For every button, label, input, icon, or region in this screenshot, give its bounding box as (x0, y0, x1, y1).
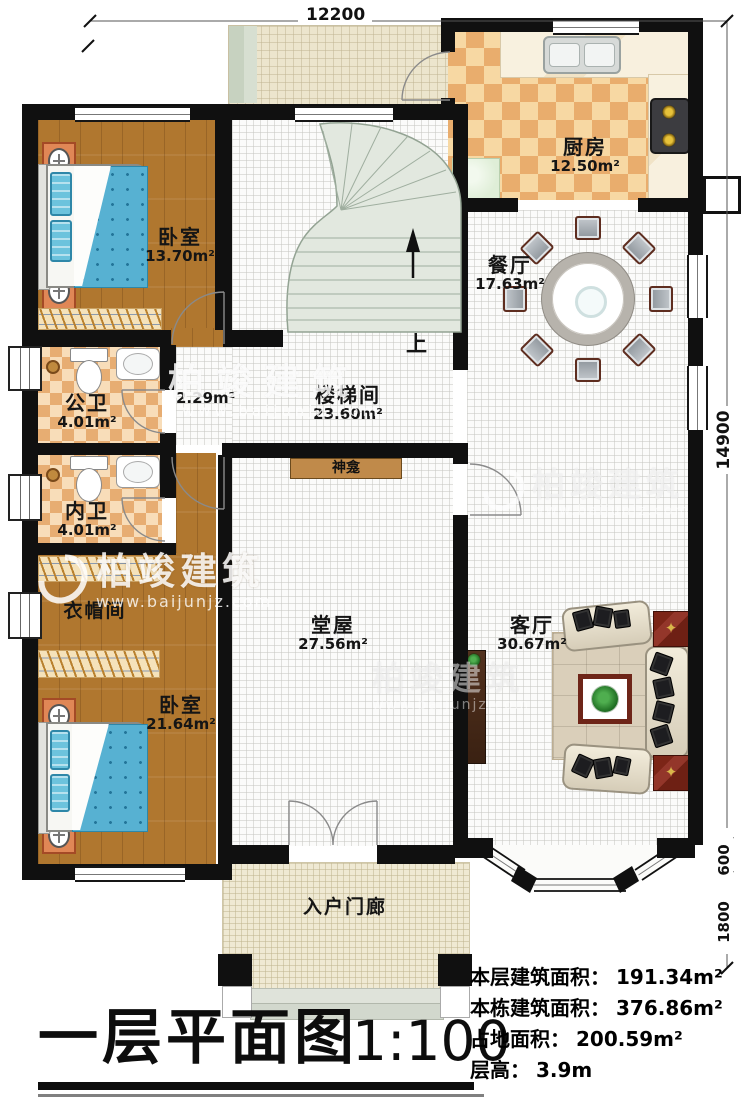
wall (453, 443, 468, 464)
room-label-dining: 餐厅 17.63m² (450, 254, 570, 293)
wall (441, 98, 455, 120)
room-name: 内卫 (47, 500, 127, 522)
wall (223, 330, 283, 347)
room-area: 17.63m² (450, 276, 570, 293)
stat-label: 本栋建筑面积： (470, 996, 610, 1020)
corridor-floor (176, 453, 216, 557)
window (295, 106, 393, 122)
window (687, 366, 708, 430)
wall (448, 198, 518, 212)
window (75, 106, 190, 122)
sofa-pillow (613, 609, 631, 629)
bed-pillow (50, 774, 70, 812)
stat-value: 376.86m² (616, 996, 723, 1020)
window (8, 592, 42, 639)
wall (222, 443, 232, 455)
room-name: 厨房 (525, 136, 645, 158)
room-label-kitchen: 厨房 12.50m² (525, 136, 645, 175)
dimension-top: 12200 (302, 5, 369, 25)
stat-value: 191.34m² (616, 965, 723, 989)
cloak-rack (38, 650, 160, 678)
dining-chair (649, 286, 673, 312)
room-name: 卧室 (130, 226, 230, 248)
side-table: ✦ (653, 611, 689, 647)
toilet-bowl (76, 468, 102, 502)
wall (377, 845, 455, 864)
room-label-porch: 入户门廊 (285, 896, 405, 918)
floor-drain (46, 360, 60, 374)
kitchen-stove (650, 98, 690, 154)
stat-value: 3.9m (536, 1058, 592, 1082)
floor-plan-page: ✦ ✦ (0, 0, 750, 1110)
stat-row: 占地面积：200.59m² (470, 1028, 723, 1050)
dimension-right-600: 600 (715, 828, 733, 892)
room-area: 12.50m² (525, 158, 645, 175)
porch-floor (222, 862, 470, 990)
room-label-living: 客厅 30.67m² (482, 614, 582, 653)
wall (22, 330, 171, 347)
wall (453, 515, 468, 845)
wardrobe-rack (38, 308, 162, 330)
wall (688, 18, 703, 200)
wall (215, 104, 232, 330)
bay-window (455, 838, 695, 893)
stat-label: 本层建筑面积： (470, 965, 610, 989)
vestibule-area-label: 2.29m² (176, 389, 235, 407)
room-name: 客厅 (482, 614, 582, 636)
room-label-stair-hall: 楼梯间 23.60m² (288, 384, 408, 423)
kitchen-sink (543, 36, 621, 74)
stove-burner (662, 105, 676, 119)
bed-pillow (50, 730, 70, 770)
terrace-green-strip-2 (244, 26, 257, 103)
bathroom-sink (116, 456, 160, 488)
bed-pillow (50, 172, 72, 216)
room-name: 入户门廊 (285, 896, 405, 918)
wall (22, 543, 176, 555)
cloak-rack (38, 556, 160, 582)
dimension-right-1800: 1800 (715, 890, 733, 954)
stat-row: 层高：3.9m (470, 1059, 723, 1081)
bed-pillow (50, 220, 72, 262)
wall (160, 345, 176, 390)
coffee-table-plant (592, 686, 618, 712)
room-label-cloakroom: 衣帽间 (45, 600, 145, 622)
drawing-title: 一层平面图 (38, 1008, 358, 1068)
room-label-main-hall: 堂屋 27.56m² (283, 614, 383, 653)
window (687, 255, 708, 318)
window (553, 19, 639, 35)
dining-chair (575, 216, 601, 240)
wall (160, 455, 176, 498)
room-area: 27.56m² (283, 636, 383, 653)
dining-table-center (575, 286, 607, 318)
room-label-bedroom2: 卧室 21.64m² (131, 694, 231, 733)
title-underline-2 (38, 1094, 484, 1097)
wall (232, 443, 455, 458)
tv-cabinet (466, 650, 486, 764)
shrine-label: 神龛 (332, 460, 360, 476)
window (75, 866, 185, 882)
stat-label: 占地面积： (470, 1027, 570, 1051)
room-label-public-bath: 公卫 4.01m² (47, 392, 127, 431)
room-area: 21.64m² (131, 716, 231, 733)
room-name: 卧室 (131, 694, 231, 716)
terrace-floor (228, 25, 457, 106)
wall (232, 845, 289, 864)
room-label-bedroom1: 卧室 13.70m² (130, 226, 230, 265)
flue-box (703, 176, 741, 214)
small-plant (468, 654, 480, 666)
room-area: 30.67m² (482, 636, 582, 653)
porch-column (438, 954, 472, 986)
stat-row: 本栋建筑面积：376.86m² (470, 997, 723, 1019)
sofa-pillow (592, 606, 613, 629)
room-label-private-bath: 内卫 4.01m² (47, 500, 127, 539)
wall (441, 18, 455, 52)
sofa-pillow (592, 757, 613, 780)
floor-drain (46, 468, 60, 482)
stat-row: 本层建筑面积：191.34m² (470, 966, 723, 988)
stat-label: 层高： (470, 1058, 530, 1082)
room-area: 4.01m² (47, 522, 127, 539)
bathroom-sink (116, 348, 160, 380)
terrace-green-strip (229, 26, 244, 103)
room-name: 公卫 (47, 392, 127, 414)
window (8, 346, 42, 391)
stove-burner (662, 133, 676, 147)
title-underline (38, 1082, 474, 1090)
room-area: 23.60m² (288, 406, 408, 423)
room-area: 4.01m² (47, 414, 127, 431)
wall (160, 433, 176, 455)
stat-value: 200.59m² (576, 1027, 683, 1051)
area-stats: 本层建筑面积：191.34m² 本栋建筑面积：376.86m² 占地面积：200… (470, 966, 723, 1081)
side-table: ✦ (653, 755, 689, 791)
room-name: 楼梯间 (288, 384, 408, 406)
wall (453, 104, 468, 370)
dining-chair (575, 358, 601, 382)
wall (218, 455, 232, 880)
room-area: 13.70m² (130, 248, 230, 265)
room-name: 餐厅 (450, 254, 570, 276)
porch-column (218, 954, 252, 986)
toilet-bowl (76, 360, 102, 394)
wall (22, 443, 170, 455)
window (8, 474, 42, 521)
sofa-pillow (652, 676, 675, 700)
room-name: 堂屋 (283, 614, 383, 636)
room-name: 衣帽间 (45, 600, 145, 622)
dimension-right: 14900 (714, 406, 734, 474)
shrine-shelf: 神龛 (290, 458, 402, 479)
stair-up-label: 上 (406, 328, 427, 358)
